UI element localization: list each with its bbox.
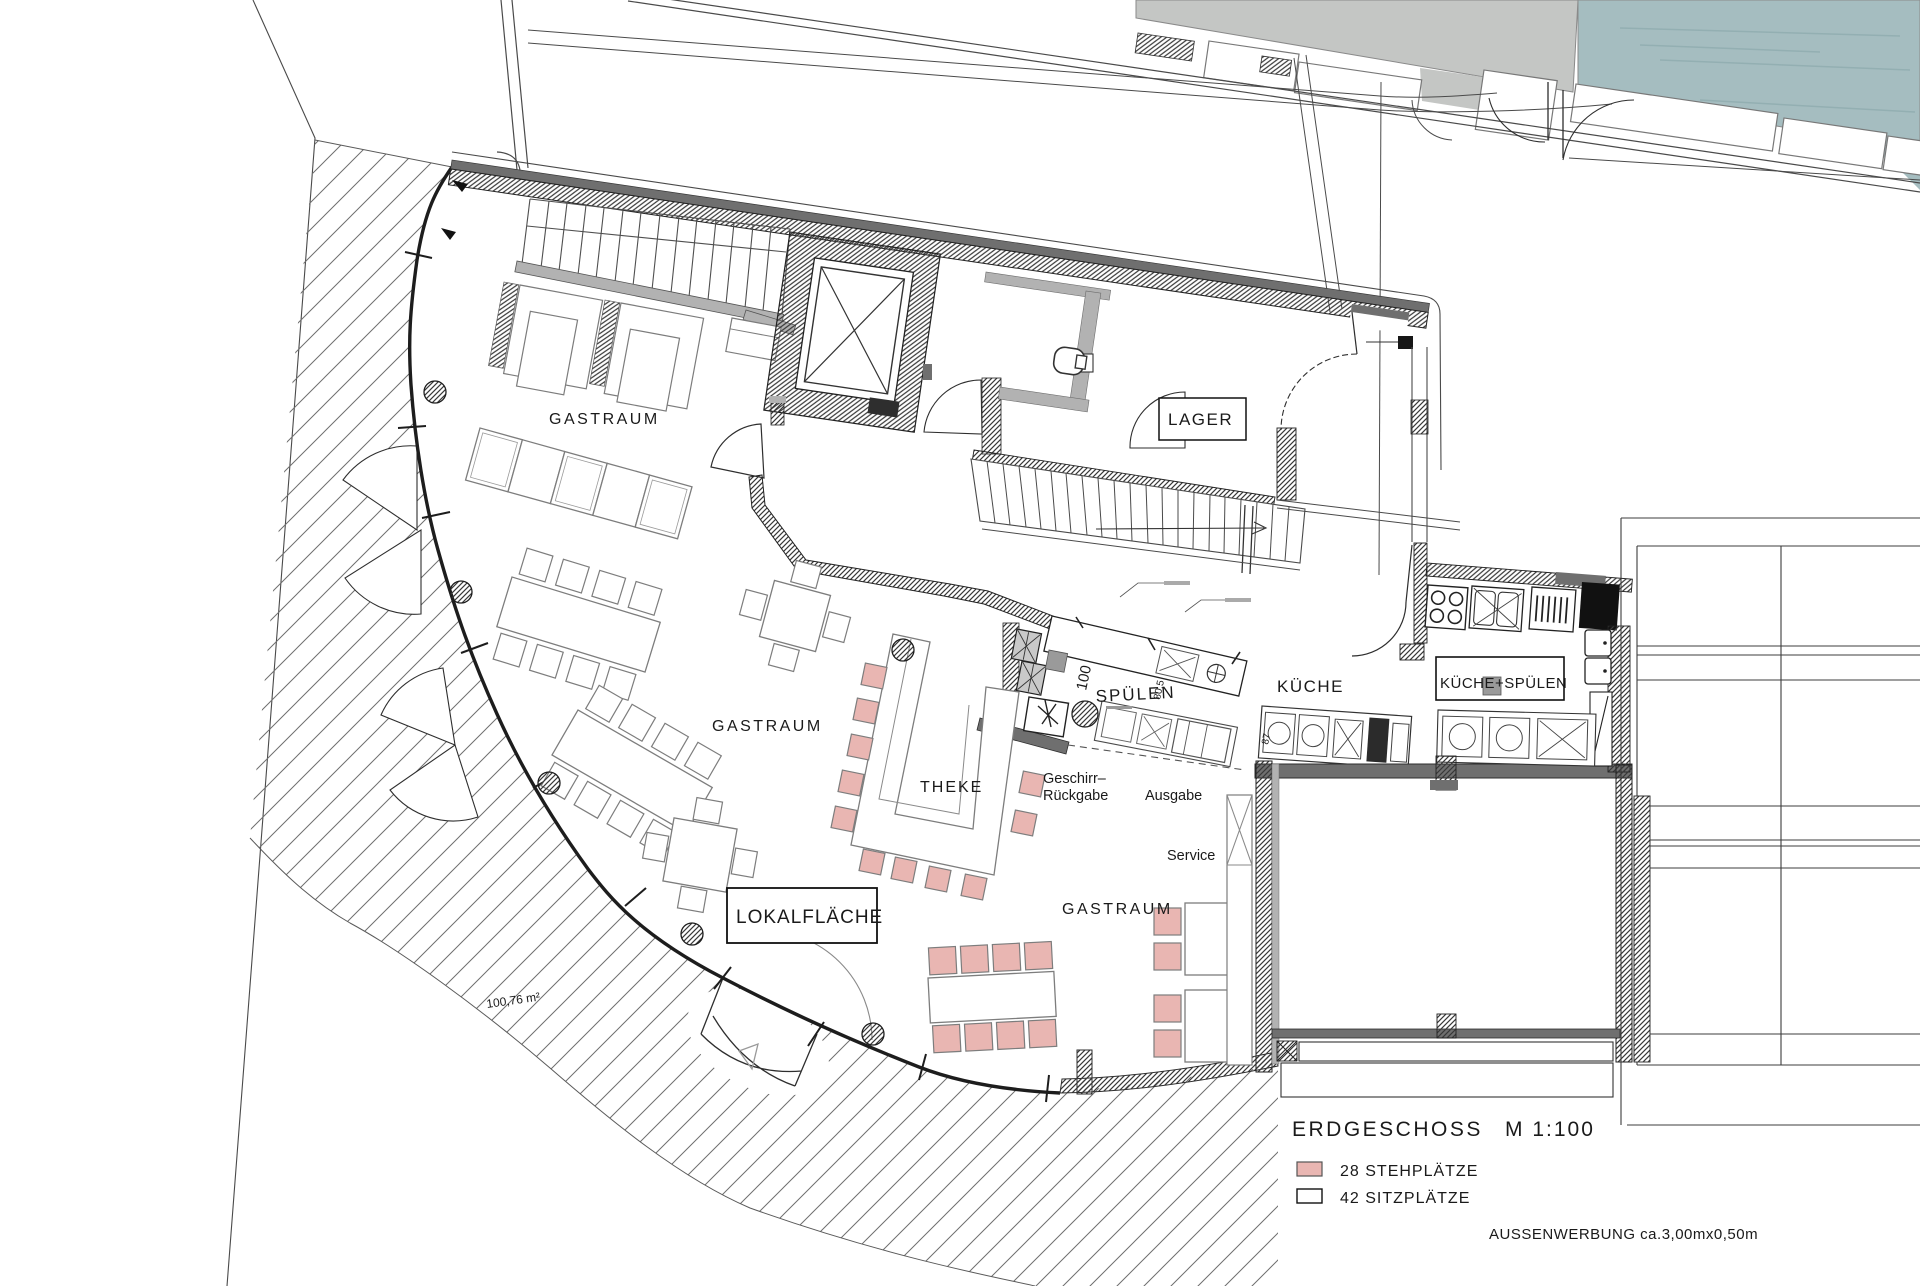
svg-text:28 STEHPLÄTZE: 28 STEHPLÄTZE (1340, 1162, 1478, 1180)
svg-text:ERDGESCHOSS: ERDGESCHOSS (1292, 1118, 1483, 1141)
svg-text:GASTRAUM: GASTRAUM (549, 411, 660, 428)
svg-text:KÜCHE+SPÜLEN: KÜCHE+SPÜLEN (1440, 674, 1567, 692)
svg-text:LAGER: LAGER (1168, 410, 1233, 429)
svg-text:KÜCHE: KÜCHE (1277, 677, 1344, 696)
svg-text:GASTRAUM: GASTRAUM (712, 718, 823, 735)
svg-text:THEKE: THEKE (920, 779, 983, 796)
svg-text:Rückgabe: Rückgabe (1043, 788, 1108, 804)
svg-text:42 SITZPLÄTZE: 42 SITZPLÄTZE (1340, 1189, 1470, 1207)
svg-text:AUSSENWERBUNG ca.3,00mx0,50m: AUSSENWERBUNG ca.3,00mx0,50m (1489, 1226, 1758, 1243)
svg-text:LOKALFLÄCHE: LOKALFLÄCHE (736, 907, 883, 928)
svg-text:M 1:100: M 1:100 (1505, 1118, 1595, 1141)
svg-text:Ausgabe: Ausgabe (1145, 788, 1202, 804)
svg-text:GASTRAUM: GASTRAUM (1062, 901, 1173, 918)
svg-text:Geschirr–: Geschirr– (1043, 771, 1107, 787)
svg-text:Service: Service (1167, 848, 1215, 864)
